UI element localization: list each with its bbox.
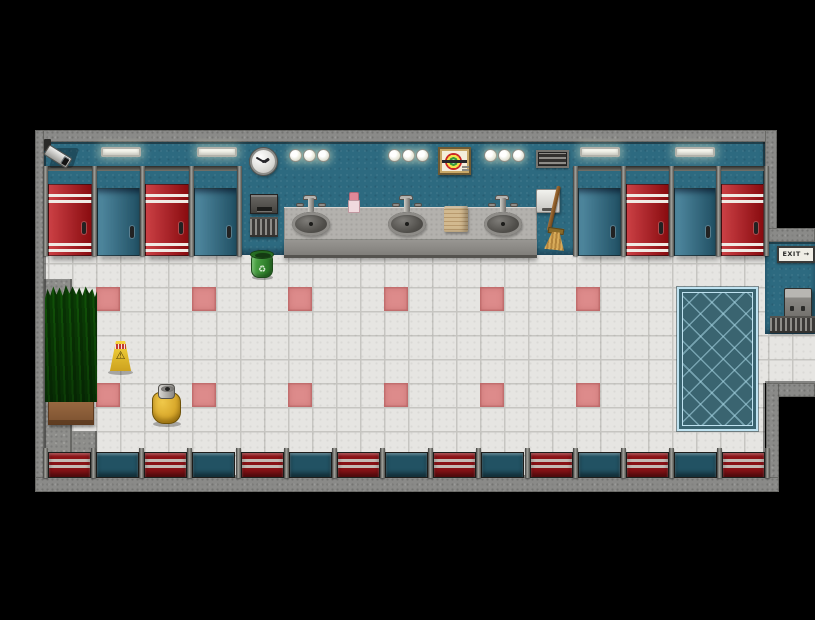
faucet-neck [404, 198, 410, 212]
accent-tile [288, 287, 312, 311]
stall-post [764, 166, 769, 256]
stall-door-red[interactable] [722, 452, 765, 478]
stall-group-bottom [43, 448, 770, 478]
door-handle [82, 222, 86, 234]
accent-tile [480, 287, 504, 311]
stall-post [428, 448, 433, 478]
exit-sign: EXIT → [777, 246, 815, 263]
vanity-light [512, 149, 525, 162]
mop-bucket[interactable] [150, 384, 184, 428]
accent-tile [576, 383, 600, 407]
accent-tile [96, 383, 120, 407]
stall-post [187, 448, 192, 478]
transit-roundel-poster[interactable] [438, 147, 471, 175]
sink[interactable] [292, 195, 330, 237]
sink-drain [309, 222, 313, 226]
soap-dispenser[interactable] [348, 192, 360, 213]
stall-door-blue[interactable] [194, 188, 238, 256]
dispenser-knob [790, 306, 794, 311]
stall-door-red[interactable] [144, 452, 187, 478]
vanity-light [388, 149, 401, 162]
stall-post [140, 166, 145, 256]
vanity-light [484, 149, 497, 162]
stall-post [236, 448, 241, 478]
stall-door-red[interactable] [337, 452, 380, 478]
accent-tile [192, 383, 216, 407]
stall-door-red[interactable] [48, 184, 92, 256]
stall-door-red[interactable] [433, 452, 476, 478]
stall-door-blue[interactable] [97, 188, 141, 256]
planter [45, 284, 97, 425]
air-vent [536, 150, 569, 168]
door-handle [754, 222, 758, 234]
broom-handle [547, 186, 561, 232]
faucet-handle [414, 203, 422, 207]
stall-post [43, 448, 48, 478]
trash-lid-inner [255, 253, 271, 258]
vanity-light [416, 149, 429, 162]
stall-post [573, 448, 578, 478]
door-handle [130, 226, 134, 238]
stall-door-red[interactable] [530, 452, 573, 478]
door-handle [659, 222, 663, 234]
stall-group-top-left [43, 166, 242, 256]
stall-door-red[interactable] [626, 184, 669, 256]
stall-door-blue[interactable] [385, 452, 428, 478]
camera-lens-icon [60, 156, 69, 166]
stall-post [669, 166, 674, 256]
accent-tile [96, 287, 120, 311]
stall-post [92, 166, 97, 256]
accent-tile [384, 383, 408, 407]
wall-top [35, 130, 776, 142]
poster-bar [442, 160, 467, 163]
door-handle [179, 222, 183, 234]
stall-door-blue[interactable] [96, 452, 139, 478]
vanity-light [289, 149, 302, 162]
alcove-inner-edge [765, 242, 815, 244]
faucet-neck [500, 198, 506, 212]
stall-door-blue[interactable] [674, 188, 717, 256]
stall-door-red[interactable] [241, 452, 284, 478]
stall-post [139, 448, 144, 478]
stall-post [91, 448, 96, 478]
stall-door-blue[interactable] [289, 452, 332, 478]
stall-post [573, 166, 578, 256]
stall-door-blue[interactable] [674, 452, 717, 478]
fluorescent-light [197, 147, 237, 157]
stall-post [716, 166, 721, 256]
soap-body [348, 200, 360, 213]
bucket-wringer [158, 384, 175, 399]
game-viewport: ♻ ⚠ EXIT → [0, 0, 815, 620]
broom[interactable] [540, 184, 568, 254]
poster-text-line [462, 166, 469, 168]
sink-drain [405, 222, 409, 226]
restroom-floor [44, 255, 765, 477]
stall-post [284, 448, 289, 478]
clock-center [262, 160, 265, 163]
stall-post [621, 448, 626, 478]
faucet-handle [296, 203, 304, 207]
door-handle [611, 226, 615, 238]
stall-door-red[interactable] [721, 184, 764, 256]
fluorescent-light [675, 147, 715, 157]
faucet-handle [318, 203, 326, 207]
planter-grass [45, 284, 97, 402]
faucet-handle [488, 203, 496, 207]
stall-group-top-right [573, 166, 769, 256]
door-handle [227, 226, 231, 238]
dispenser-slot [257, 207, 272, 211]
warning-icon: ⚠ [109, 349, 132, 363]
vanity-light [317, 149, 330, 162]
alcove-wall-top [765, 228, 815, 242]
accent-tile [192, 287, 216, 311]
paper-towel-dispenser[interactable] [250, 194, 278, 214]
accent-tile [384, 287, 408, 311]
trash-can[interactable]: ♻ [250, 250, 275, 280]
trash-lid [250, 250, 274, 259]
room-inner-edge [44, 142, 765, 144]
wall-bottom [35, 477, 779, 492]
fluorescent-light [580, 147, 620, 157]
accent-tile [480, 383, 504, 407]
radiator [250, 217, 278, 237]
stall-door-blue[interactable] [578, 452, 621, 478]
vanity-light [402, 149, 415, 162]
stall-post [669, 448, 674, 478]
door-handle [706, 226, 710, 238]
stall-post [237, 166, 242, 256]
alcove-floor [765, 334, 815, 383]
faucet-handle [510, 203, 518, 207]
fluorescent-light [101, 147, 141, 157]
poster-text-line [462, 169, 469, 171]
stall-post [621, 166, 626, 256]
wringer-hole [165, 387, 170, 391]
stall-door-blue[interactable] [481, 452, 524, 478]
stall-post [525, 448, 530, 478]
stall-post [476, 448, 481, 478]
stall-post [380, 448, 385, 478]
stall-post [717, 448, 722, 478]
vanity-light [498, 149, 511, 162]
accent-tile [576, 287, 600, 311]
stall-post [189, 166, 194, 256]
stall-door-red[interactable] [48, 452, 91, 478]
stall-door-blue[interactable] [192, 452, 235, 478]
faucet-handle [392, 203, 400, 207]
wall-clock [250, 148, 277, 175]
alcove-inner-edge [765, 381, 815, 383]
faucet-neck [308, 198, 314, 212]
sink-drain [501, 222, 505, 226]
sink[interactable] [388, 195, 426, 237]
wet-floor-cone: ⚠ [109, 341, 132, 371]
sink[interactable] [484, 195, 522, 237]
vanity-light [303, 149, 316, 162]
wet-floor-sign[interactable]: ⚠ [106, 341, 135, 375]
shower-mat [677, 287, 758, 431]
accent-tile [288, 383, 312, 407]
stall-door-red[interactable] [626, 452, 669, 478]
recycle-icon: ♻ [252, 266, 272, 275]
stall-door-red[interactable] [145, 184, 189, 256]
stall-post [43, 166, 48, 256]
stall-post [765, 448, 770, 478]
poster-paper [442, 151, 467, 171]
towel-stack[interactable] [444, 206, 468, 232]
stall-door-blue[interactable] [578, 188, 621, 256]
dispenser-knob [801, 306, 805, 311]
sink-counter-front [284, 240, 537, 258]
alcove-radiator [770, 316, 815, 333]
stall-post [332, 448, 337, 478]
